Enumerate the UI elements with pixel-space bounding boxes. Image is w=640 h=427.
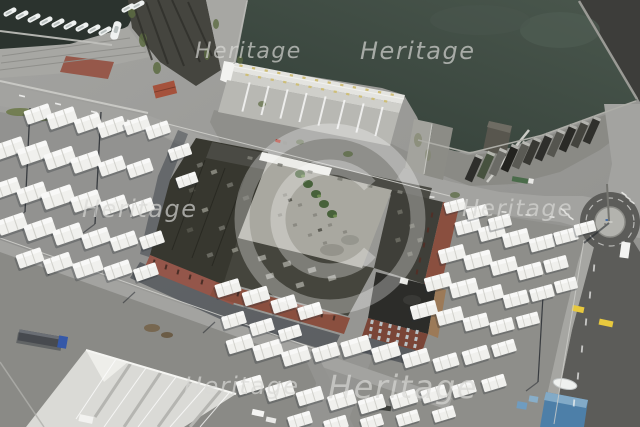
detail-mark bbox=[528, 178, 534, 184]
watermark-text: Heritage bbox=[184, 372, 299, 400]
terrain-detail bbox=[319, 200, 329, 208]
watermark-text: Heritage bbox=[328, 368, 478, 406]
terrain-detail bbox=[450, 192, 460, 198]
terrain-detail bbox=[213, 19, 219, 29]
terrain-detail bbox=[341, 235, 359, 245]
watermark-text: Heritage bbox=[82, 195, 197, 223]
terrain-detail bbox=[343, 151, 353, 157]
aerial-photograph: Heritage Heritage Heritage Heritage Heri… bbox=[0, 0, 640, 427]
terrain-detail bbox=[333, 215, 337, 218]
aerial-photo-canvas: Heritage Heritage Heritage Heritage Heri… bbox=[0, 0, 640, 427]
detail-mark bbox=[610, 221, 613, 223]
terrain-detail bbox=[317, 195, 321, 198]
watermark-text: Heritage bbox=[462, 196, 573, 222]
terrain-detail bbox=[320, 244, 344, 256]
terrain-detail bbox=[161, 332, 173, 338]
terrain-detail bbox=[144, 324, 160, 332]
terrain-detail bbox=[153, 62, 161, 74]
watermark-text: Heritage bbox=[195, 39, 302, 64]
watermark-text: Heritage bbox=[360, 37, 475, 65]
terrain-detail bbox=[430, 5, 530, 35]
terrain-detail bbox=[403, 295, 421, 305]
